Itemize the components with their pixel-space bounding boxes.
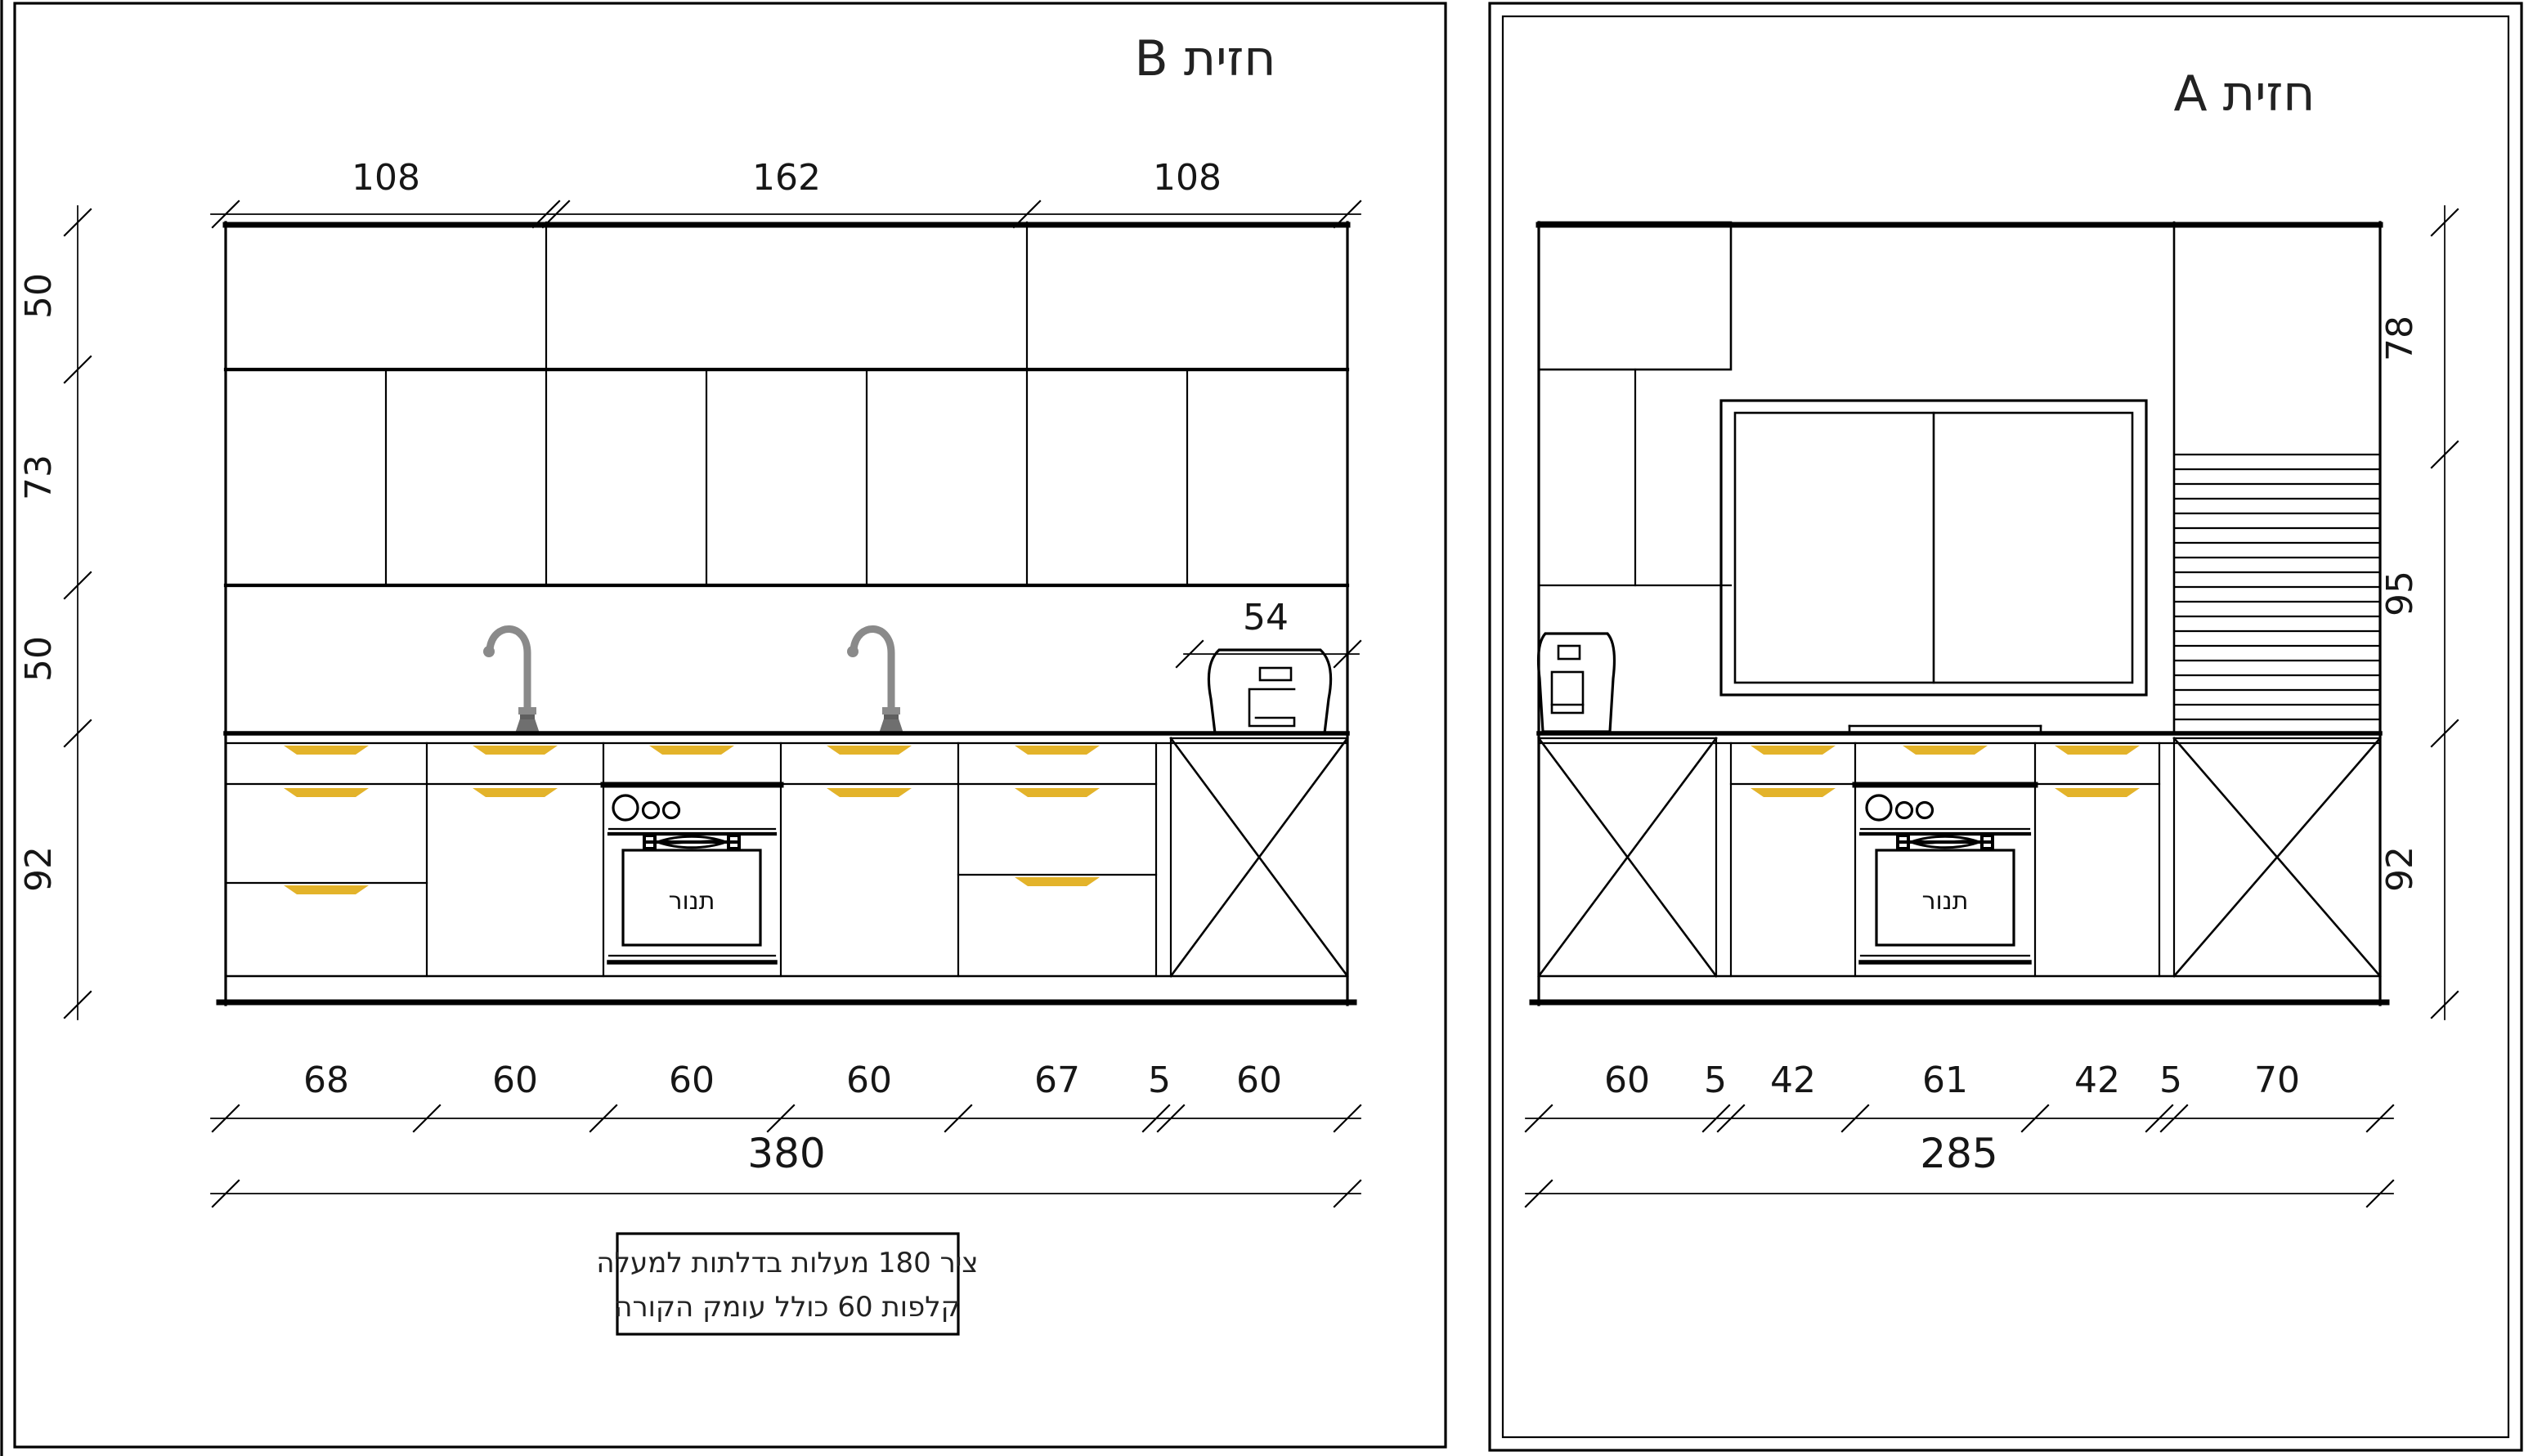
dim-label: 70 (2254, 1060, 2300, 1101)
note-line: קלפות 60 כולל עומק הקורה (614, 1291, 960, 1324)
cooktop-knobs-icon (1867, 795, 1933, 820)
appliance-body (1538, 634, 1614, 732)
elevation-b-base-cabinets (219, 738, 1354, 1002)
dim-label: 67 (1034, 1060, 1080, 1101)
dim-label: 42 (1770, 1060, 1816, 1101)
elevation-b-title: חזית B (1134, 30, 1275, 87)
louver-panel (2176, 455, 2378, 719)
note-line: ציר 180 מעלות בדלתות למעלה (596, 1247, 978, 1279)
cooktop-knobs-icon (613, 795, 679, 820)
left-panel-frame (2, 0, 1446, 1456)
oven-label: תנור (1922, 887, 1969, 916)
faucet-icon (847, 629, 903, 733)
drawer-handles (1751, 746, 2140, 797)
dim-label: 78 (2379, 316, 2421, 361)
x-cabinet (1171, 738, 1347, 976)
elevation-b-upper-cabinets (386, 222, 1187, 585)
dim-label: 60 (669, 1060, 715, 1101)
window (1721, 401, 2146, 695)
cad-drawing-sheet: חזית B (0, 0, 2524, 1456)
elevation-a-dimensions: 78 95 92 60 5 42 61 42 5 70 285 (1526, 206, 2458, 1207)
dim-label: 95 (2379, 571, 2421, 616)
dim-label: 42 (2074, 1060, 2120, 1101)
counter-appliance-front: 54 (1177, 597, 1361, 733)
dim-label: 92 (18, 846, 60, 892)
dim-label: 50 (18, 636, 60, 682)
elevation-a: חזית A (1526, 65, 2458, 1207)
dim-label: 5 (1704, 1060, 1727, 1101)
elevation-a-title: חזית A (2174, 65, 2316, 123)
dim-label: 108 (1153, 157, 1222, 199)
kitchen-elevations-svg: חזית B (0, 0, 2524, 1456)
faucet-icon (483, 629, 540, 733)
elevation-b-dimensions: 108 162 108 50 73 50 92 68 60 (18, 157, 1361, 1207)
oven-unit: תנור (603, 785, 781, 962)
dim-total-label: 285 (1920, 1130, 1997, 1177)
dim-label: 68 (303, 1060, 349, 1101)
oven-handle-icon (644, 836, 739, 849)
dim-54-label: 54 (1243, 597, 1289, 638)
dim-label: 50 (18, 273, 60, 319)
counter-appliance-side (1538, 634, 1614, 732)
oven-label: תנור (669, 887, 715, 916)
x-cabinet (2174, 738, 2380, 976)
x-cabinet (1539, 738, 1716, 976)
dim-total-label: 380 (747, 1130, 825, 1177)
dim-label: 61 (1922, 1060, 1968, 1101)
dim-label: 92 (2379, 846, 2421, 892)
oven-handle-icon (1898, 836, 1993, 849)
dim-label: 60 (846, 1060, 892, 1101)
elevation-a-countertop (1539, 726, 2380, 743)
dim-label: 60 (1236, 1060, 1282, 1101)
dim-label: 108 (352, 157, 420, 199)
elevation-b-cabinet-outline (226, 222, 1347, 1005)
drawer-handles (284, 746, 1100, 894)
oven-unit: תנור (1855, 785, 2035, 962)
appliance-body (1208, 650, 1330, 733)
dim-label: 73 (18, 455, 60, 500)
note-box: ציר 180 מעלות בדלתות למעלה קלפות 60 כולל… (596, 1234, 978, 1334)
dim-label: 60 (1604, 1060, 1650, 1101)
dim-label: 60 (492, 1060, 538, 1101)
dim-label: 5 (1148, 1060, 1171, 1101)
elevation-b: חזית B (18, 30, 1361, 1334)
dim-label: 162 (752, 157, 821, 199)
corner-upper-cabinet (1539, 222, 1731, 585)
dim-label: 5 (2159, 1060, 2182, 1101)
